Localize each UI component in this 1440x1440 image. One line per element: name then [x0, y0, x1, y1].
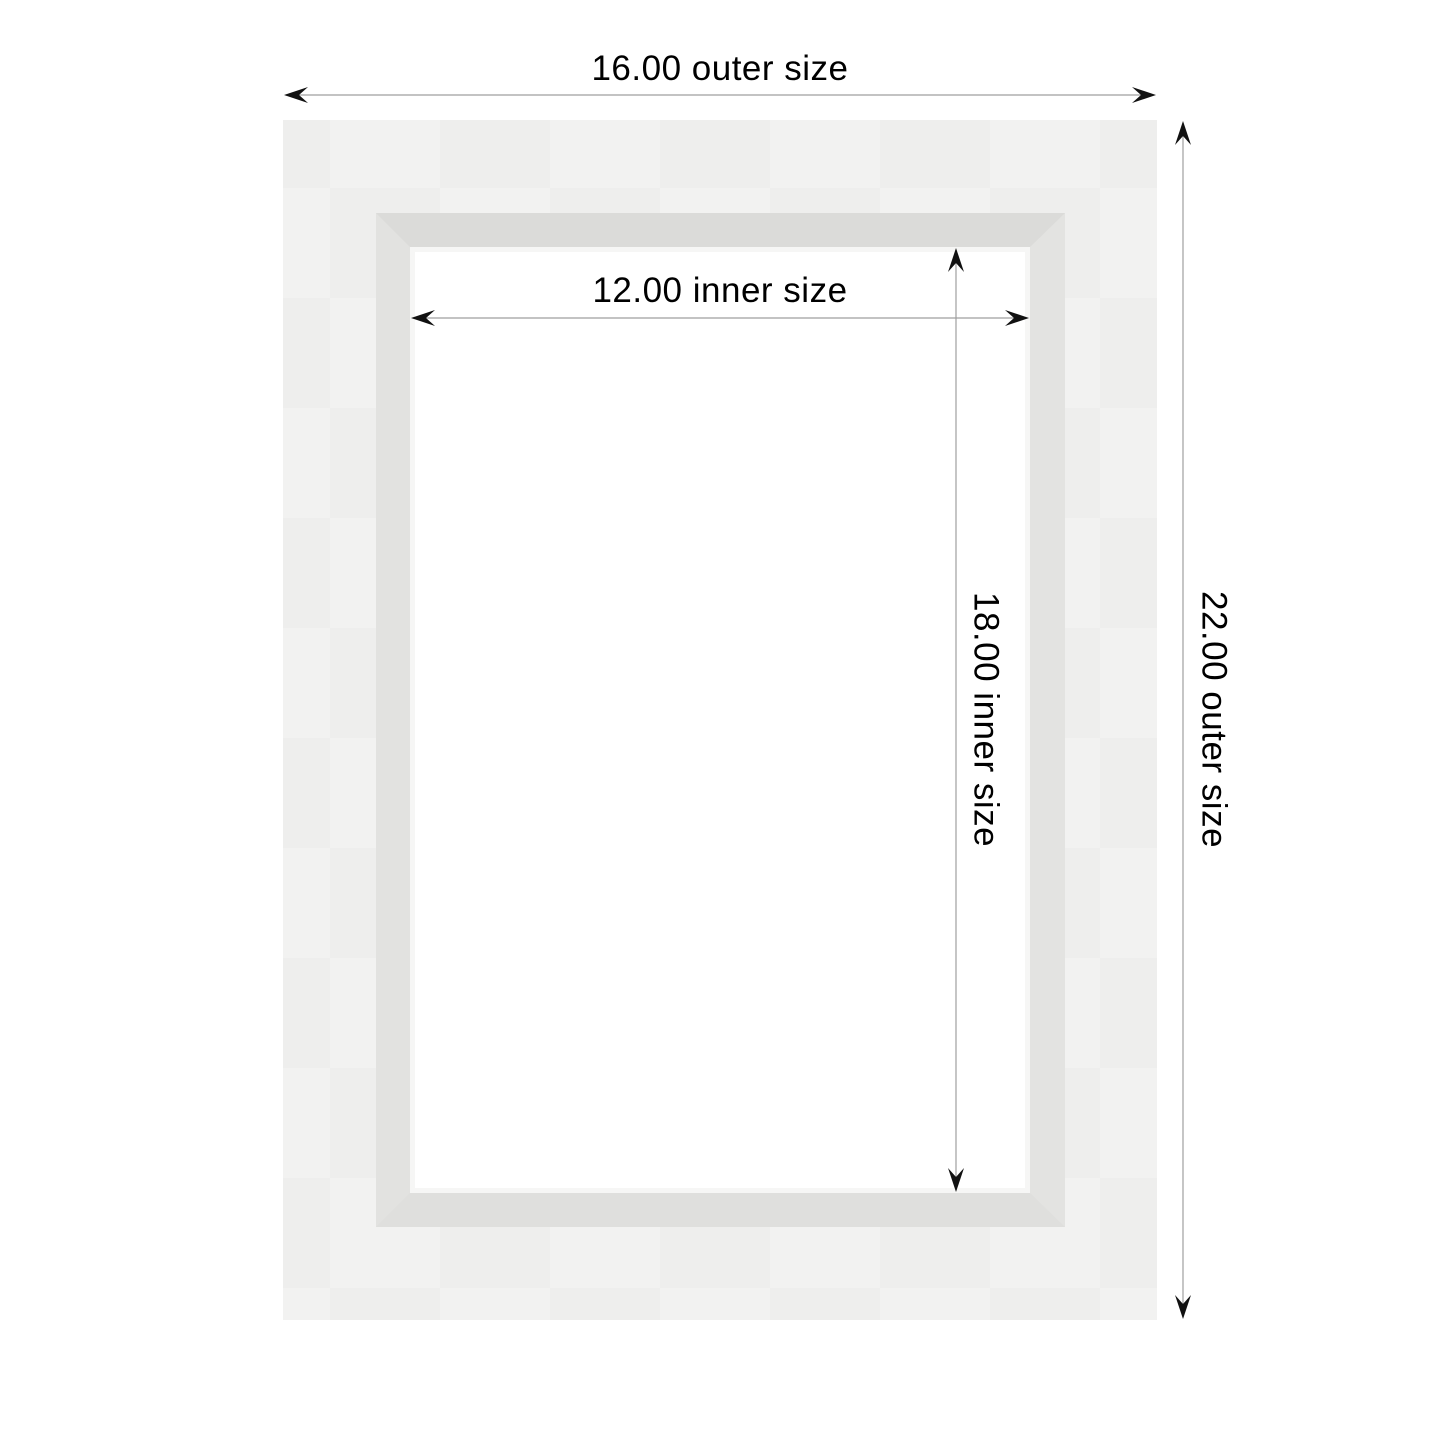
- inner-width-label: 12.00 inner size: [410, 272, 1030, 311]
- inner-height-label: 18.00 inner size: [966, 247, 1005, 1193]
- outer-width-label: 16.00 outer size: [283, 50, 1157, 89]
- outer-height-dimension-line: [1174, 120, 1192, 1320]
- outer-height-label: 22.00 outer size: [1194, 120, 1233, 1320]
- outer-width-dimension-line: [283, 86, 1157, 104]
- inner-width-dimension-line: [410, 309, 1030, 327]
- inner-height-dimension-line: [947, 247, 965, 1193]
- diagram-canvas: 16.00 outer size 22.00 outer size 12.00 …: [0, 0, 1440, 1440]
- frame-opening: [415, 252, 1025, 1188]
- frame-bevel: [410, 247, 1030, 1193]
